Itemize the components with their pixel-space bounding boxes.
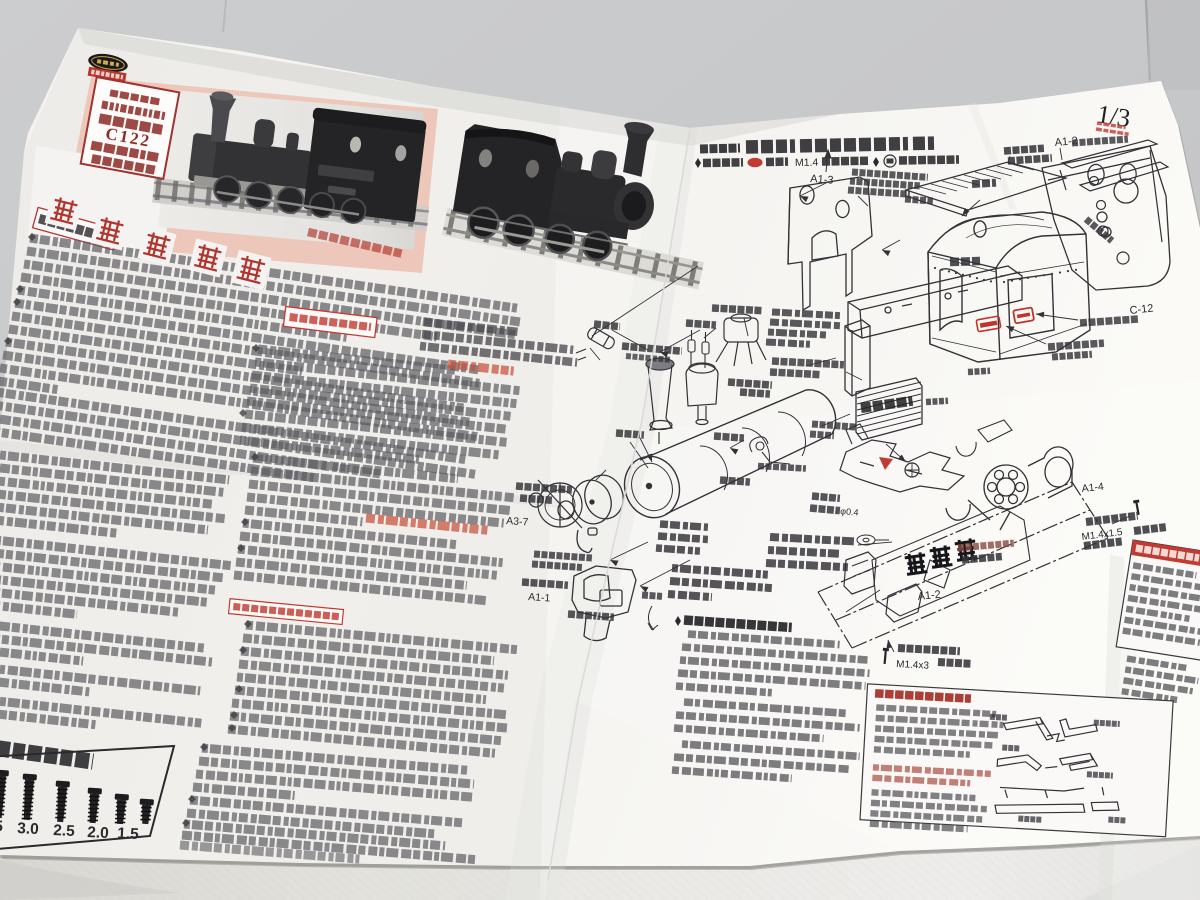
svg-text:2.5: 2.5: [53, 822, 76, 840]
svg-text:A1-2: A1-2: [917, 589, 941, 603]
svg-text:A3-7: A3-7: [506, 515, 529, 529]
svg-text:M1.4x3: M1.4x3: [896, 659, 930, 672]
svg-text:1.5: 1.5: [117, 825, 140, 843]
svg-text:φ0.4: φ0.4: [840, 506, 859, 518]
svg-text:M1.4: M1.4: [795, 157, 819, 169]
svg-text:C-12: C-12: [1129, 303, 1154, 317]
svg-text:A1-4: A1-4: [1081, 481, 1104, 495]
svg-text:A1-1: A1-1: [528, 591, 551, 605]
svg-text:3.0: 3.0: [17, 820, 39, 838]
svg-text:2.0: 2.0: [87, 824, 109, 842]
